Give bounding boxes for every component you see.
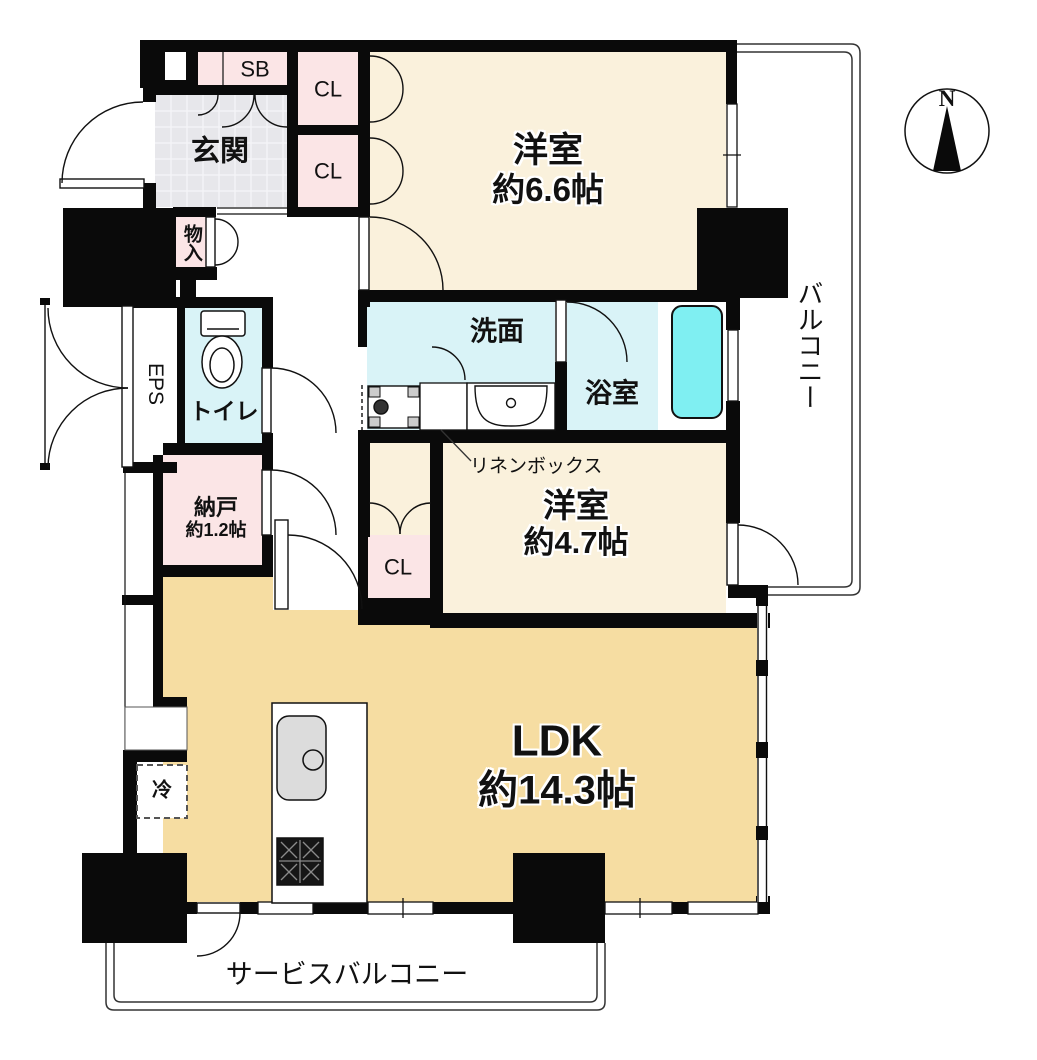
western-room-47-name: 洋室 xyxy=(523,487,628,525)
eps-label: EPS xyxy=(143,363,167,405)
window-ldk-south-1 xyxy=(258,902,313,914)
western-room-66-label: 洋室 約6.6帖 xyxy=(492,131,604,209)
ldk-name: LDK xyxy=(478,717,636,768)
balcony-door-arc xyxy=(738,525,798,585)
nando-area: 約1.2帖 xyxy=(185,520,246,541)
washroom-label: 洗面 xyxy=(470,316,524,347)
monoire-label: 物入 xyxy=(180,224,202,262)
western-room-47-area: 約4.7帖 xyxy=(523,525,628,561)
bathroom-label: 浴室 xyxy=(585,378,639,409)
toilet-door-arc xyxy=(271,368,336,433)
genkan-step xyxy=(217,208,287,214)
shoe-box-label: SB xyxy=(240,56,269,81)
window-bath xyxy=(728,330,738,401)
western-room-47-alcove xyxy=(367,443,430,535)
toilet-label: トイレ xyxy=(190,398,259,424)
western66-door-frame xyxy=(359,217,369,290)
balcony-label: バルコニー xyxy=(793,280,823,410)
room-fills xyxy=(155,52,757,902)
entrance-door-arc xyxy=(62,102,143,183)
linen-box-label: リネンボックス xyxy=(470,456,602,478)
linen-box xyxy=(420,383,467,430)
window-ldk-south-4 xyxy=(688,902,758,914)
nando-label: 納戸 約1.2帖 xyxy=(185,495,246,541)
closet3-label: CL xyxy=(384,554,412,579)
service-balcony-door-arc xyxy=(197,913,240,956)
western-room-66-area: 約6.6帖 xyxy=(492,171,604,209)
pillar-top-right xyxy=(697,208,788,298)
floorplan-canvas: 玄関 SB CL CL 物入 洋室 約6.6帖 バルコニー 洗面 浴室 トイレ … xyxy=(0,0,1037,1060)
window-ldk-south-3 xyxy=(605,902,672,914)
pillar-top-left xyxy=(63,208,176,307)
toilet-fixture xyxy=(201,311,245,388)
ldk-label: LDK 約14.3帖 xyxy=(478,717,636,814)
western-room-66-name: 洋室 xyxy=(492,131,604,171)
closet1-label: CL xyxy=(314,76,342,101)
west-bay xyxy=(125,707,187,750)
window-ldk-south-2 xyxy=(368,902,433,914)
stove xyxy=(277,838,323,885)
eps-door-leaf xyxy=(122,306,133,467)
pillar-bottom-left xyxy=(82,853,187,943)
washing-machine xyxy=(368,386,420,428)
nando-name: 納戸 xyxy=(185,495,246,520)
window-ldk-east xyxy=(756,598,768,902)
closet2-label: CL xyxy=(314,158,342,183)
pillar-bottom-middle xyxy=(513,853,605,943)
western-room-47-label: 洋室 約4.7帖 xyxy=(523,487,628,561)
service-balcony-label: サービスバルコニー xyxy=(226,959,468,990)
bathroom-floor xyxy=(567,302,658,430)
ldk-door-arc xyxy=(288,535,362,609)
bathtub xyxy=(672,306,722,418)
genkan-label: 玄関 xyxy=(191,135,249,168)
refrigerator-label: 冷 xyxy=(152,780,172,803)
compass-north-label: N xyxy=(939,86,956,112)
entrance-door-leaf xyxy=(60,179,144,188)
ldk-area: 約14.3帖 xyxy=(478,767,636,813)
ldk-door-leaf xyxy=(275,520,288,609)
corner-notch xyxy=(165,52,186,80)
washbasin xyxy=(467,383,555,430)
